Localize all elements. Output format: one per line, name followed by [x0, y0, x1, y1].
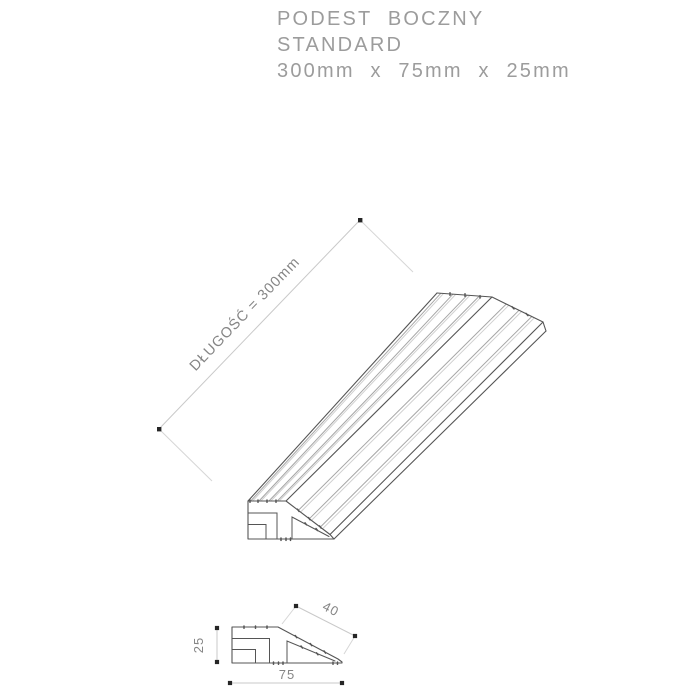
- crease-edge: [286, 297, 492, 501]
- base-width-endpoint-left: [228, 681, 232, 685]
- slope-width-dimension: 40: [282, 599, 357, 654]
- length-dimension: DŁUGOŚĆ = 300mm: [157, 218, 413, 481]
- iso-tick-marks: [250, 293, 528, 541]
- height-dim-endpoint-top: [215, 626, 219, 630]
- isometric-view: [248, 293, 546, 541]
- base-width-dimension: 75: [228, 667, 344, 685]
- section-chamber-wall: [232, 639, 270, 664]
- base-width-dimension-label: 75: [279, 667, 295, 682]
- slope-bottom-edge: [330, 322, 543, 535]
- lower-right-edge: [334, 331, 546, 539]
- length-dim-endpoint-far: [358, 218, 362, 222]
- slope-dim-endpoint-right: [353, 634, 357, 638]
- height-dim-endpoint-bottom: [215, 660, 219, 664]
- height-dimension-label: 25: [191, 637, 206, 653]
- top-surface-grooves: [251, 293, 482, 501]
- slope-dim-endpoint-left: [294, 604, 298, 608]
- slope-extension-line-right: [344, 636, 355, 654]
- front-face-chamber-wall: [248, 513, 277, 539]
- base-width-endpoint-right: [340, 681, 344, 685]
- ramp-surface-grooves: [298, 304, 534, 529]
- drawing-sheet: PODEST BOCZNY STANDARD 300mm x 75mm x 25…: [0, 0, 700, 700]
- length-dimension-label: DŁUGOŚĆ = 300mm: [185, 253, 303, 375]
- length-dim-endpoint-near: [157, 427, 161, 431]
- technical-drawing: DŁUGOŚĆ = 300mm: [0, 0, 700, 700]
- height-dimension: 25: [191, 626, 219, 664]
- front-face-slot: [248, 525, 266, 540]
- length-extension-line-near: [159, 429, 212, 481]
- length-extension-line-far: [360, 220, 413, 272]
- section-slot: [232, 650, 256, 664]
- length-dimension-line: [159, 220, 360, 429]
- section-tick-marks: [244, 626, 338, 664]
- cross-section-view: 25 75 40: [191, 599, 357, 686]
- slope-extension-line-left: [282, 606, 296, 624]
- slope-dimension-label: 40: [320, 599, 341, 620]
